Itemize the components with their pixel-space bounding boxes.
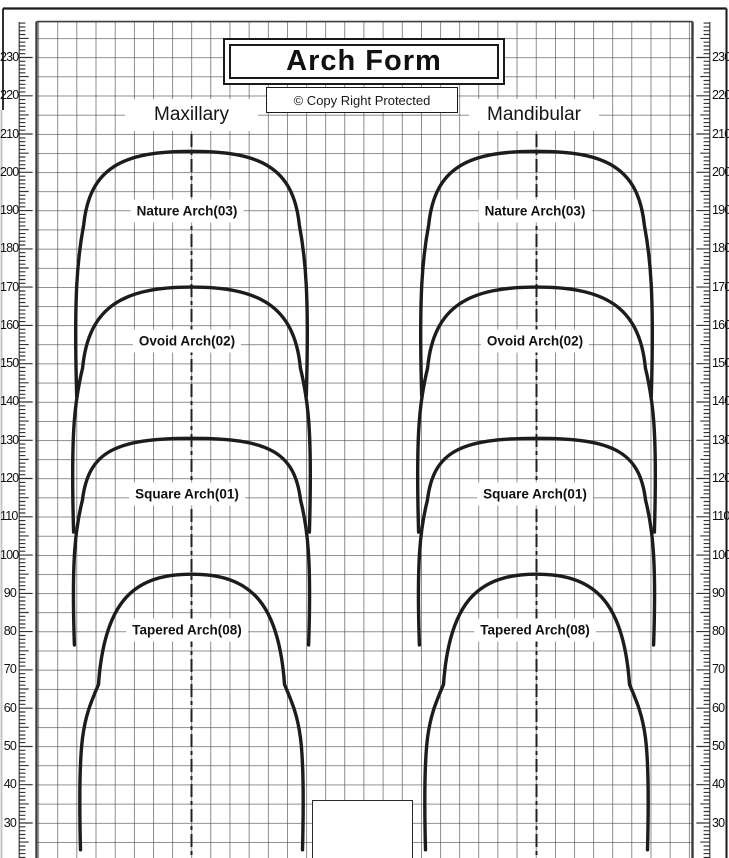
chart-canvas [0,0,729,858]
scale-label-right: 180 [712,242,729,255]
panel-header-maxillary: Maxillary [125,99,258,131]
scale-label-right: 50 [712,740,729,753]
right-ruler [696,22,710,858]
scale-label-right: 210 [712,128,729,141]
copyright-notice: © Copy Right Protected [266,87,458,113]
scale-label-right: 220 [712,89,729,102]
scale-label-left: 220 [0,89,16,102]
scale-label-right: 170 [712,281,729,294]
scale-label-left: 100 [0,549,16,562]
scale-label-right: 120 [712,472,729,485]
arch-label-tapered-maxillary: Tapered Arch(08) [126,618,248,641]
left-ruler [19,22,33,858]
arch-label-square-maxillary: Square Arch(01) [129,482,245,505]
scale-label-right: 30 [712,817,729,830]
scale-label-left: 230 [0,51,16,64]
scale-label-right: 190 [712,204,729,217]
scale-label-right: 70 [712,663,729,676]
scale-label-left: 120 [0,472,16,485]
scale-label-left: 160 [0,319,16,332]
scale-label-right: 150 [712,357,729,370]
scale-label-left: 170 [0,281,16,294]
scale-label-left: 150 [0,357,16,370]
arch-label-square-mandibular: Square Arch(01) [477,482,593,505]
scale-label-right: 110 [712,510,729,523]
scale-label-left: 90 [0,587,16,600]
arch-label-tapered-mandibular: Tapered Arch(08) [474,618,596,641]
scale-label-left: 40 [0,778,16,791]
scale-label-left: 50 [0,740,16,753]
arch-label-ovoid-maxillary: Ovoid Arch(02) [133,329,241,352]
arch-label-nature-mandibular: Nature Arch(03) [479,199,592,222]
arch-label-nature-maxillary: Nature Arch(03) [131,199,244,222]
scale-label-right: 230 [712,51,729,64]
scale-label-right: 200 [712,166,729,179]
grid-area [37,22,693,858]
scale-label-left: 110 [0,510,16,523]
scale-label-right: 90 [712,587,729,600]
scale-label-left: 30 [0,817,16,830]
scale-label-left: 130 [0,434,16,447]
scale-label-left: 80 [0,625,16,638]
scale-label-left: 180 [0,242,16,255]
scale-label-right: 130 [712,434,729,447]
scale-label-right: 40 [712,778,729,791]
scale-label-left: 200 [0,166,16,179]
scale-label-left: 140 [0,395,16,408]
scale-label-right: 100 [712,549,729,562]
bottom-blank-box [312,800,413,858]
scale-label-left: 60 [0,702,16,715]
arch-form-chart-page: 2302202102001901801701601501401301201101… [0,0,729,858]
panel-header-mandibular: Mandibular [469,99,599,131]
scale-label-left: 70 [0,663,16,676]
scale-label-right: 140 [712,395,729,408]
scale-label-right: 160 [712,319,729,332]
arch-label-ovoid-mandibular: Ovoid Arch(02) [481,329,589,352]
scale-label-left: 210 [0,128,16,141]
scale-label-left: 190 [0,204,16,217]
page-title: Arch Form [229,44,499,79]
scale-label-right: 80 [712,625,729,638]
title-box: Arch Form [223,38,505,85]
scale-label-right: 60 [712,702,729,715]
